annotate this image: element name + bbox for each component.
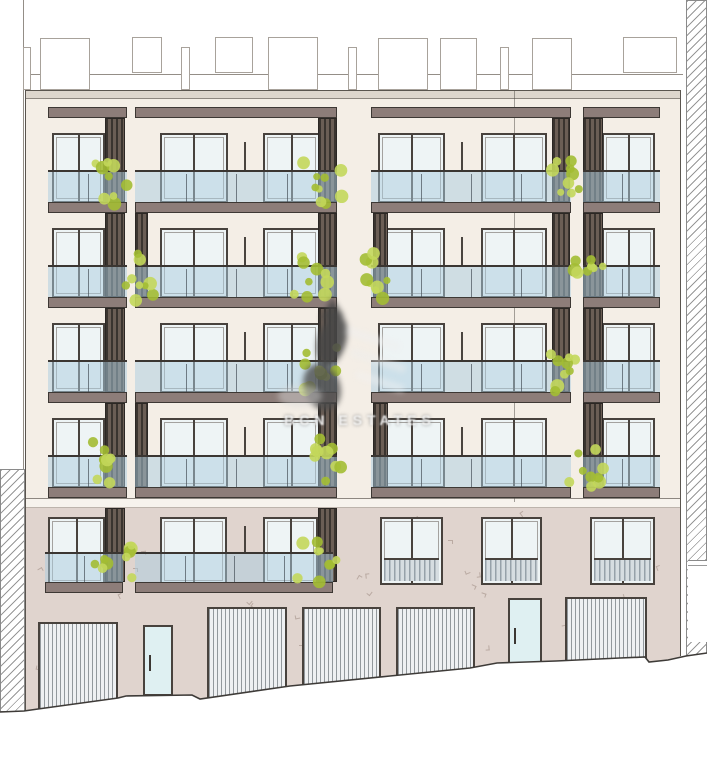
watermark-streak	[355, 370, 405, 393]
street-ground	[0, 653, 707, 768]
watermark-text: BCN ESTATES	[258, 412, 462, 428]
watermark-streak	[351, 348, 407, 373]
architectural-elevation-drawing: BCN ESTATES	[0, 0, 707, 768]
watermark-streak	[278, 385, 322, 407]
watermark-streak	[345, 326, 401, 351]
watermark-logo-shape	[312, 311, 353, 368]
